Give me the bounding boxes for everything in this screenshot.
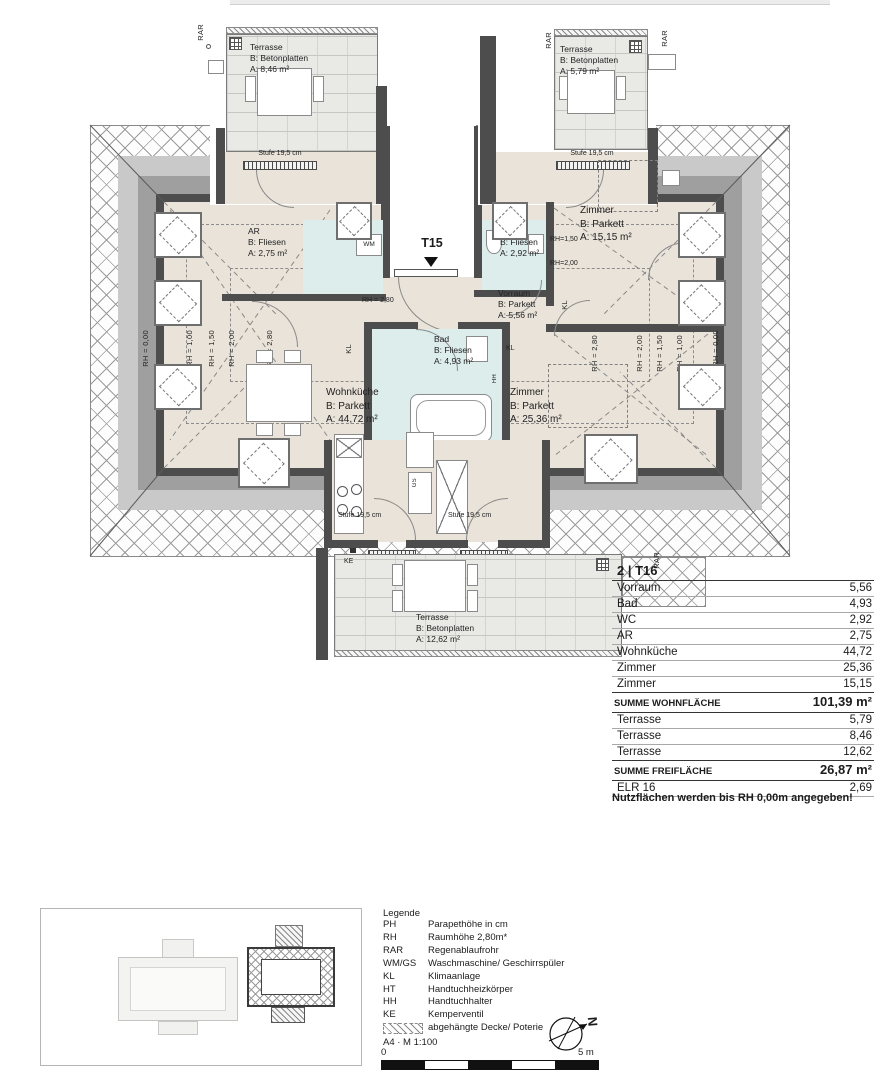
row-value: 2,75 xyxy=(850,629,872,644)
room-name: Terrasse xyxy=(560,44,618,55)
room-label-terrasse-tl: Terrasse B: Betonplatten A: 8,46 m² xyxy=(250,42,308,75)
table-row: WC2,92 xyxy=(612,613,874,629)
legend-entry: RHRaumhöhe 2,80m* xyxy=(383,932,643,945)
sheet-format-scale: A4 · M 1:100 xyxy=(383,1037,437,1048)
area-table-title: 2 | T16 xyxy=(612,562,874,581)
legend-abbr: RAR xyxy=(383,945,428,958)
room-area: A: 2,92 m² xyxy=(500,248,539,259)
sum-free-row: SUMME FREIFLÄCHE26,87 m² xyxy=(612,760,874,781)
room-name: Terrasse xyxy=(416,612,474,623)
bathtub-inner xyxy=(416,400,486,436)
room-area: A: 4,93 m² xyxy=(434,356,473,367)
entry-threshold xyxy=(394,269,458,277)
stove-burner xyxy=(351,484,362,495)
scale-segment xyxy=(382,1061,425,1069)
legend-abbr: KE xyxy=(383,1009,428,1022)
legend-abbr: HH xyxy=(383,996,428,1009)
row-value: 15,15 xyxy=(843,677,872,692)
terrace-chair xyxy=(616,76,626,100)
room-label-bad: Bad B: Fliesen A: 4,93 m² xyxy=(434,334,473,367)
mini-wing xyxy=(158,1021,198,1035)
scale-segment xyxy=(512,1061,555,1069)
stove-burner xyxy=(337,486,348,497)
dining-chair xyxy=(256,350,273,363)
rh-label: RH = 2,80 xyxy=(362,297,394,304)
entry-direction-arrow xyxy=(424,257,438,267)
room-area: A: 8,46 m² xyxy=(250,64,308,75)
legend-entry: KEKemperventil xyxy=(383,1009,643,1022)
legend-title: Legende xyxy=(383,908,643,919)
sum-value: 26,87 m² xyxy=(820,761,872,778)
legend-abbr: HT xyxy=(383,984,428,997)
scale-segment xyxy=(555,1061,598,1069)
room-label-terrasse-tr: Terrasse B: Betonplatten A: 5,79 m² xyxy=(560,44,618,77)
scale-segment xyxy=(425,1061,468,1069)
nightstand xyxy=(662,170,680,186)
room-name: Wohnküche xyxy=(326,386,379,400)
mini-inner xyxy=(261,959,321,995)
legend-text: Parapethöhe in cm xyxy=(428,919,508,932)
terrace-b-floor xyxy=(334,554,622,656)
sum-label: SUMME FREIFLÄCHE xyxy=(614,763,712,780)
wall-segment xyxy=(406,540,468,548)
legend-entry: RARRegenablaufrohr xyxy=(383,945,643,958)
room-name: Zimmer xyxy=(510,386,562,400)
rh-label: RH = 0,00 xyxy=(711,330,720,367)
row-value: 2,92 xyxy=(850,613,872,628)
wall-segment xyxy=(372,322,418,329)
rar-pipe-icon xyxy=(206,44,211,49)
roof-window xyxy=(678,280,726,326)
roof-eave-strip xyxy=(226,27,378,34)
table-row: Terrasse12,62 xyxy=(612,745,874,761)
step-label: Stufe 19,5 cm xyxy=(338,512,420,519)
dining-table xyxy=(246,364,312,422)
row-label: Terrasse xyxy=(617,745,661,760)
overview-plan-current xyxy=(247,925,339,1025)
room-finish: B: Parkett xyxy=(580,218,632,232)
terrace-table xyxy=(404,560,466,612)
sum-value: 101,39 m² xyxy=(813,693,872,710)
rh-label: RH = 2,00 xyxy=(635,335,644,372)
kl-label: KL xyxy=(506,345,515,352)
terrace-table xyxy=(257,68,312,116)
measurement-note: Nutzflächen werden bis RH 0,00m angegebe… xyxy=(612,792,853,804)
rh-label: RH = 1,50 xyxy=(207,330,216,367)
room-label-terrasse-b: Terrasse B: Betonplatten A: 12,62 m² xyxy=(416,612,474,645)
entry-recess xyxy=(388,123,476,277)
legend-abbr: KL xyxy=(383,971,428,984)
table-row: Terrasse5,79 xyxy=(612,713,874,729)
table-row: AR2,75 xyxy=(612,629,874,645)
north-compass-icon xyxy=(546,1010,590,1056)
roof-window xyxy=(584,434,638,484)
legend-text: Regenablaufrohr xyxy=(428,945,499,958)
room-area: A: 15,15 m² xyxy=(580,231,632,245)
table-row: Vorraum5,56 xyxy=(612,581,874,597)
sum-label: SUMME WOHNFLÄCHE xyxy=(614,695,721,712)
legend-text: Kemperventil xyxy=(428,1009,483,1022)
roof-window xyxy=(492,202,528,240)
scale-zero: 0 xyxy=(381,1047,386,1058)
room-area: A: 12,62 m² xyxy=(416,634,474,645)
legend-text: Handtuchhalter xyxy=(428,996,492,1009)
legend-abbr: RH xyxy=(383,932,428,945)
mini-inner xyxy=(130,967,226,1011)
legend-abbr: WM/GS xyxy=(383,958,428,971)
wall-segment xyxy=(216,128,225,204)
room-area: A: 5,79 m² xyxy=(560,66,618,77)
terrace-chair xyxy=(467,564,478,586)
roof-window xyxy=(154,364,202,410)
legend-abbr: PH xyxy=(383,919,428,932)
room-name: Zimmer xyxy=(580,204,632,218)
roof-window xyxy=(678,364,726,410)
room-finish: B: Parkett xyxy=(498,299,537,310)
wing-floor xyxy=(225,152,376,204)
roof-window xyxy=(154,280,202,326)
mini-wing xyxy=(275,925,303,947)
rh-label: RH = 1,50 xyxy=(655,335,664,372)
rar-label: RAR xyxy=(196,24,205,41)
rh-label: RH = 2,00 xyxy=(227,330,236,367)
room-finish: B: Betonplatten xyxy=(250,53,308,64)
row-value: 2,69 xyxy=(850,781,872,796)
table-row: Bad4,93 xyxy=(612,597,874,613)
rh-label: RH=2,00 xyxy=(550,260,578,267)
room-area: A: 2,75 m² xyxy=(248,248,287,259)
legend-text: abgehängte Decke/ Poterie xyxy=(428,1022,543,1035)
row-value: 5,79 xyxy=(850,713,872,728)
row-value: 44,72 xyxy=(843,645,872,660)
room-area: A: 44,72 m² xyxy=(326,413,379,427)
rar-label: RAR xyxy=(660,30,669,47)
floor-plan-sheet: RH = 0,00 RH = 1,00 RH = 1,50 RH = 2,00 … xyxy=(0,0,893,1080)
roof-window xyxy=(154,212,202,258)
room-label-zimmer-gross: Zimmer B: Parkett A: 25,36 m² xyxy=(510,386,562,427)
roof-window xyxy=(678,212,726,258)
row-value: 8,46 xyxy=(850,729,872,744)
duct-shaft xyxy=(436,460,468,534)
row-value: 4,93 xyxy=(850,597,872,612)
table-row: Wohnküche44,72 xyxy=(612,645,874,661)
kitchen-unit xyxy=(406,432,434,468)
scale-segment xyxy=(468,1061,511,1069)
step-label: Stufe 19,5 cm xyxy=(550,150,634,157)
terrace-chair xyxy=(467,590,478,612)
north-letter: N xyxy=(585,1016,601,1027)
room-name: Terrasse xyxy=(250,42,308,53)
room-name: AR xyxy=(248,226,287,237)
terrace-chair xyxy=(313,76,324,102)
roof-window xyxy=(238,438,290,488)
terrace-chair xyxy=(392,564,403,586)
legend-entry: abgehängte Decke/ Poterie xyxy=(383,1022,643,1035)
wall-segment xyxy=(502,322,510,452)
wall-segment xyxy=(364,322,372,448)
dining-chair xyxy=(256,423,273,436)
wall-segment xyxy=(316,548,328,660)
room-label-ar: AR B: Fliesen A: 2,75 m² xyxy=(248,226,287,259)
wall-segment xyxy=(542,440,550,548)
wall-segment xyxy=(458,322,506,329)
legend-entry: WM/GSWaschmaschine/ Geschirrspüler xyxy=(383,958,643,971)
room-label-vorraum: Vorraum B: Parkett A: 5,56 m² xyxy=(498,288,537,321)
mini-wing xyxy=(271,1007,305,1023)
roof-eave-strip xyxy=(554,29,648,36)
room-name: Vorraum xyxy=(498,288,537,299)
table-row: Zimmer25,36 xyxy=(612,661,874,677)
sum-living-row: SUMME WOHNFLÄCHE101,39 m² xyxy=(612,692,874,713)
ke-label: KE xyxy=(344,558,353,565)
step-hatch xyxy=(243,161,317,170)
roof-eave-strip xyxy=(334,650,622,657)
row-label: Bad xyxy=(617,597,637,612)
rh-label: RH=1,50 xyxy=(550,236,578,243)
wall-segment xyxy=(480,36,496,204)
table-row: Terrasse8,46 xyxy=(612,729,874,745)
dining-chair xyxy=(284,350,301,363)
rar-label: RAR xyxy=(544,32,553,49)
legend-text: Handtuchheizkörper xyxy=(428,984,513,997)
row-label: Zimmer xyxy=(617,661,656,676)
room-finish: B: Fliesen xyxy=(434,345,473,356)
towel-holder-label: HH xyxy=(492,374,498,383)
row-value: 25,36 xyxy=(843,661,872,676)
room-area: A: 25,36 m² xyxy=(510,413,562,427)
row-label: Terrasse xyxy=(617,713,661,728)
legend-entry: HHHandtuchhalter xyxy=(383,996,643,1009)
area-table: 2 | T16 Vorraum5,56 Bad4,93 WC2,92 AR2,7… xyxy=(612,562,874,797)
ledge xyxy=(648,54,676,70)
legend-entry: KLKlimaanlage xyxy=(383,971,643,984)
terrace-chair xyxy=(392,590,403,612)
ceiling-hatch-swatch xyxy=(383,1023,423,1034)
wall-segment xyxy=(324,440,332,548)
scale-bar xyxy=(381,1060,599,1070)
ke-valve-icon xyxy=(350,548,356,553)
room-finish: B: Betonplatten xyxy=(560,55,618,66)
legend-text: Raumhöhe 2,80m* xyxy=(428,932,507,945)
room-finish: B: Parkett xyxy=(326,400,379,414)
step-label: Stufe 19,5 cm xyxy=(238,150,322,157)
room-finish: B: Fliesen xyxy=(248,237,287,248)
legend-entry: HTHandtuchheizkörper xyxy=(383,984,643,997)
room-area: A: 5,56 m² xyxy=(498,310,537,321)
overview-plans-box xyxy=(40,908,362,1066)
step-label: Stufe 19,5 cm xyxy=(448,512,532,519)
wall-segment xyxy=(332,540,378,548)
kl-label: KL xyxy=(344,344,353,354)
wall-segment xyxy=(498,540,542,548)
room-label-wohnkueche: Wohnküche B: Parkett A: 44,72 m² xyxy=(326,386,379,427)
overview-plan-other xyxy=(116,937,241,1037)
drain-grate-icon xyxy=(629,40,642,53)
mini-wing xyxy=(162,939,194,959)
room-name: Bad xyxy=(434,334,473,345)
room-finish: B: Parkett xyxy=(510,400,562,414)
row-label: Zimmer xyxy=(617,677,656,692)
kitchen-sink xyxy=(336,438,362,458)
terrace-chair xyxy=(245,76,256,102)
row-label: Vorraum xyxy=(617,581,660,596)
row-label: AR xyxy=(617,629,633,644)
dishwasher-label: GS xyxy=(412,478,418,487)
legend-text: Klimaanlage xyxy=(428,971,480,984)
drain-grate-icon xyxy=(596,558,609,571)
drain-grate-icon xyxy=(229,37,242,50)
room-label-zimmer-klein: Zimmer B: Parkett A: 15,15 m² xyxy=(580,204,632,245)
table-row: Zimmer15,15 xyxy=(612,677,874,693)
ledge xyxy=(208,60,224,74)
rh-label: RH = 0,00 xyxy=(141,330,150,367)
legend-entry: PHParapethöhe in cm xyxy=(383,919,643,932)
row-label: Terrasse xyxy=(617,729,661,744)
rh-label: RH = 1,00 xyxy=(185,330,194,367)
roof-window xyxy=(336,202,372,240)
dining-chair xyxy=(284,423,301,436)
legend-text: Waschmaschine/ Geschirrspüler xyxy=(428,958,564,971)
wall-segment xyxy=(546,202,554,306)
room-finish: B: Betonplatten xyxy=(416,623,474,634)
row-value: 5,56 xyxy=(850,581,872,596)
unit-entry-label: T15 xyxy=(398,236,466,250)
row-value: 12,62 xyxy=(843,745,872,760)
row-label: Wohnküche xyxy=(617,645,678,660)
legend: Legende PHParapethöhe in cm RHRaumhöhe 2… xyxy=(383,908,643,1035)
row-label: WC xyxy=(617,613,636,628)
